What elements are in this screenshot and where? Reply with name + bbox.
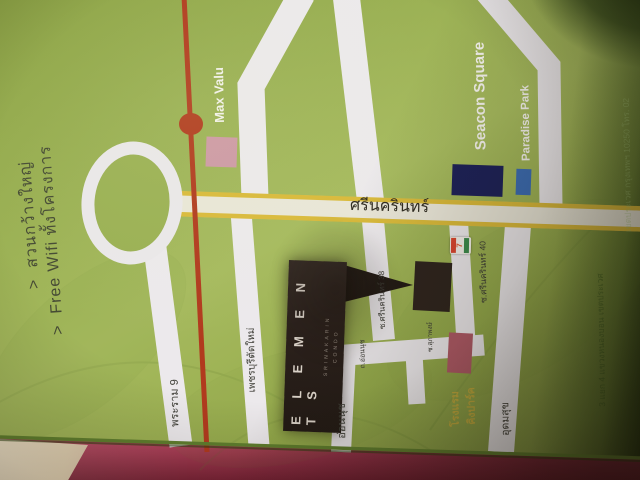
address-faint-line-1: 3 แยก 4 แขวงหนองบอน เขตประเวศ — [593, 273, 609, 407]
bullet-chevron: > — [25, 278, 43, 290]
elements-logo-sub2: CONDO — [332, 329, 339, 363]
max-valu-marker-dot — [179, 113, 203, 135]
udom-suk-road-label: อุดมสุข — [496, 402, 514, 436]
on-nut-small-label: ถ.อ่อนนุช — [357, 339, 369, 368]
red-route-line — [184, 0, 207, 452]
king-park-hotel-block — [447, 332, 473, 373]
road-soi38-upper — [346, 0, 371, 205]
paradise-park-label: Paradise Park — [519, 85, 532, 161]
soi-38-label: ซ.ศรีนครินทร์ 38 — [375, 271, 389, 330]
road-soi40 — [458, 213, 466, 342]
on-nut-road-label: อ่อนนุช — [332, 403, 351, 439]
king-park-hotel-label-2: คิงปาร์ค — [462, 387, 480, 425]
roundabout — [84, 145, 179, 261]
road-north-a — [251, 0, 302, 198]
max-valu-block — [205, 136, 237, 167]
project-site-building — [413, 261, 453, 312]
bullet-chevron: > — [49, 324, 67, 336]
brochure-photo: > สวนกว้างใหญ่ > Free Wifi ทั้งโครงการ M… — [0, 0, 640, 480]
new-phetchaburi-road-label: เพชรบุรีตัดใหม่ — [244, 327, 260, 392]
seven-eleven-icon: 7 — [450, 237, 471, 254]
seacon-square-block — [451, 164, 503, 197]
elements-logo-name: E L E M E N T S — [288, 260, 324, 425]
king-park-hotel-label-1: โรงแรม — [446, 391, 464, 427]
seven-eleven-green-stripe — [464, 238, 469, 253]
srinagarindra-road-label: ศรีนครินทร์ — [350, 193, 430, 220]
soi-supapong-label: ซ.สุภาพงษ์ — [425, 322, 436, 352]
soi-40-label: ซ.ศรีนครินทร์ 40 — [475, 241, 490, 303]
rama9-road-label: พระราม 9 — [165, 379, 184, 427]
seacon-square-label: Seacon Square — [471, 42, 490, 151]
paradise-park-block — [516, 169, 532, 196]
max-valu-label: Max Valu — [211, 67, 227, 123]
elements-logo-sub1: SRINAKARIN — [323, 315, 331, 376]
address-faint-line-2: เขตประเวศ กรุงเทพฯ 10250 โทร. 02 — [619, 98, 635, 232]
road-mid-drop — [414, 354, 417, 404]
